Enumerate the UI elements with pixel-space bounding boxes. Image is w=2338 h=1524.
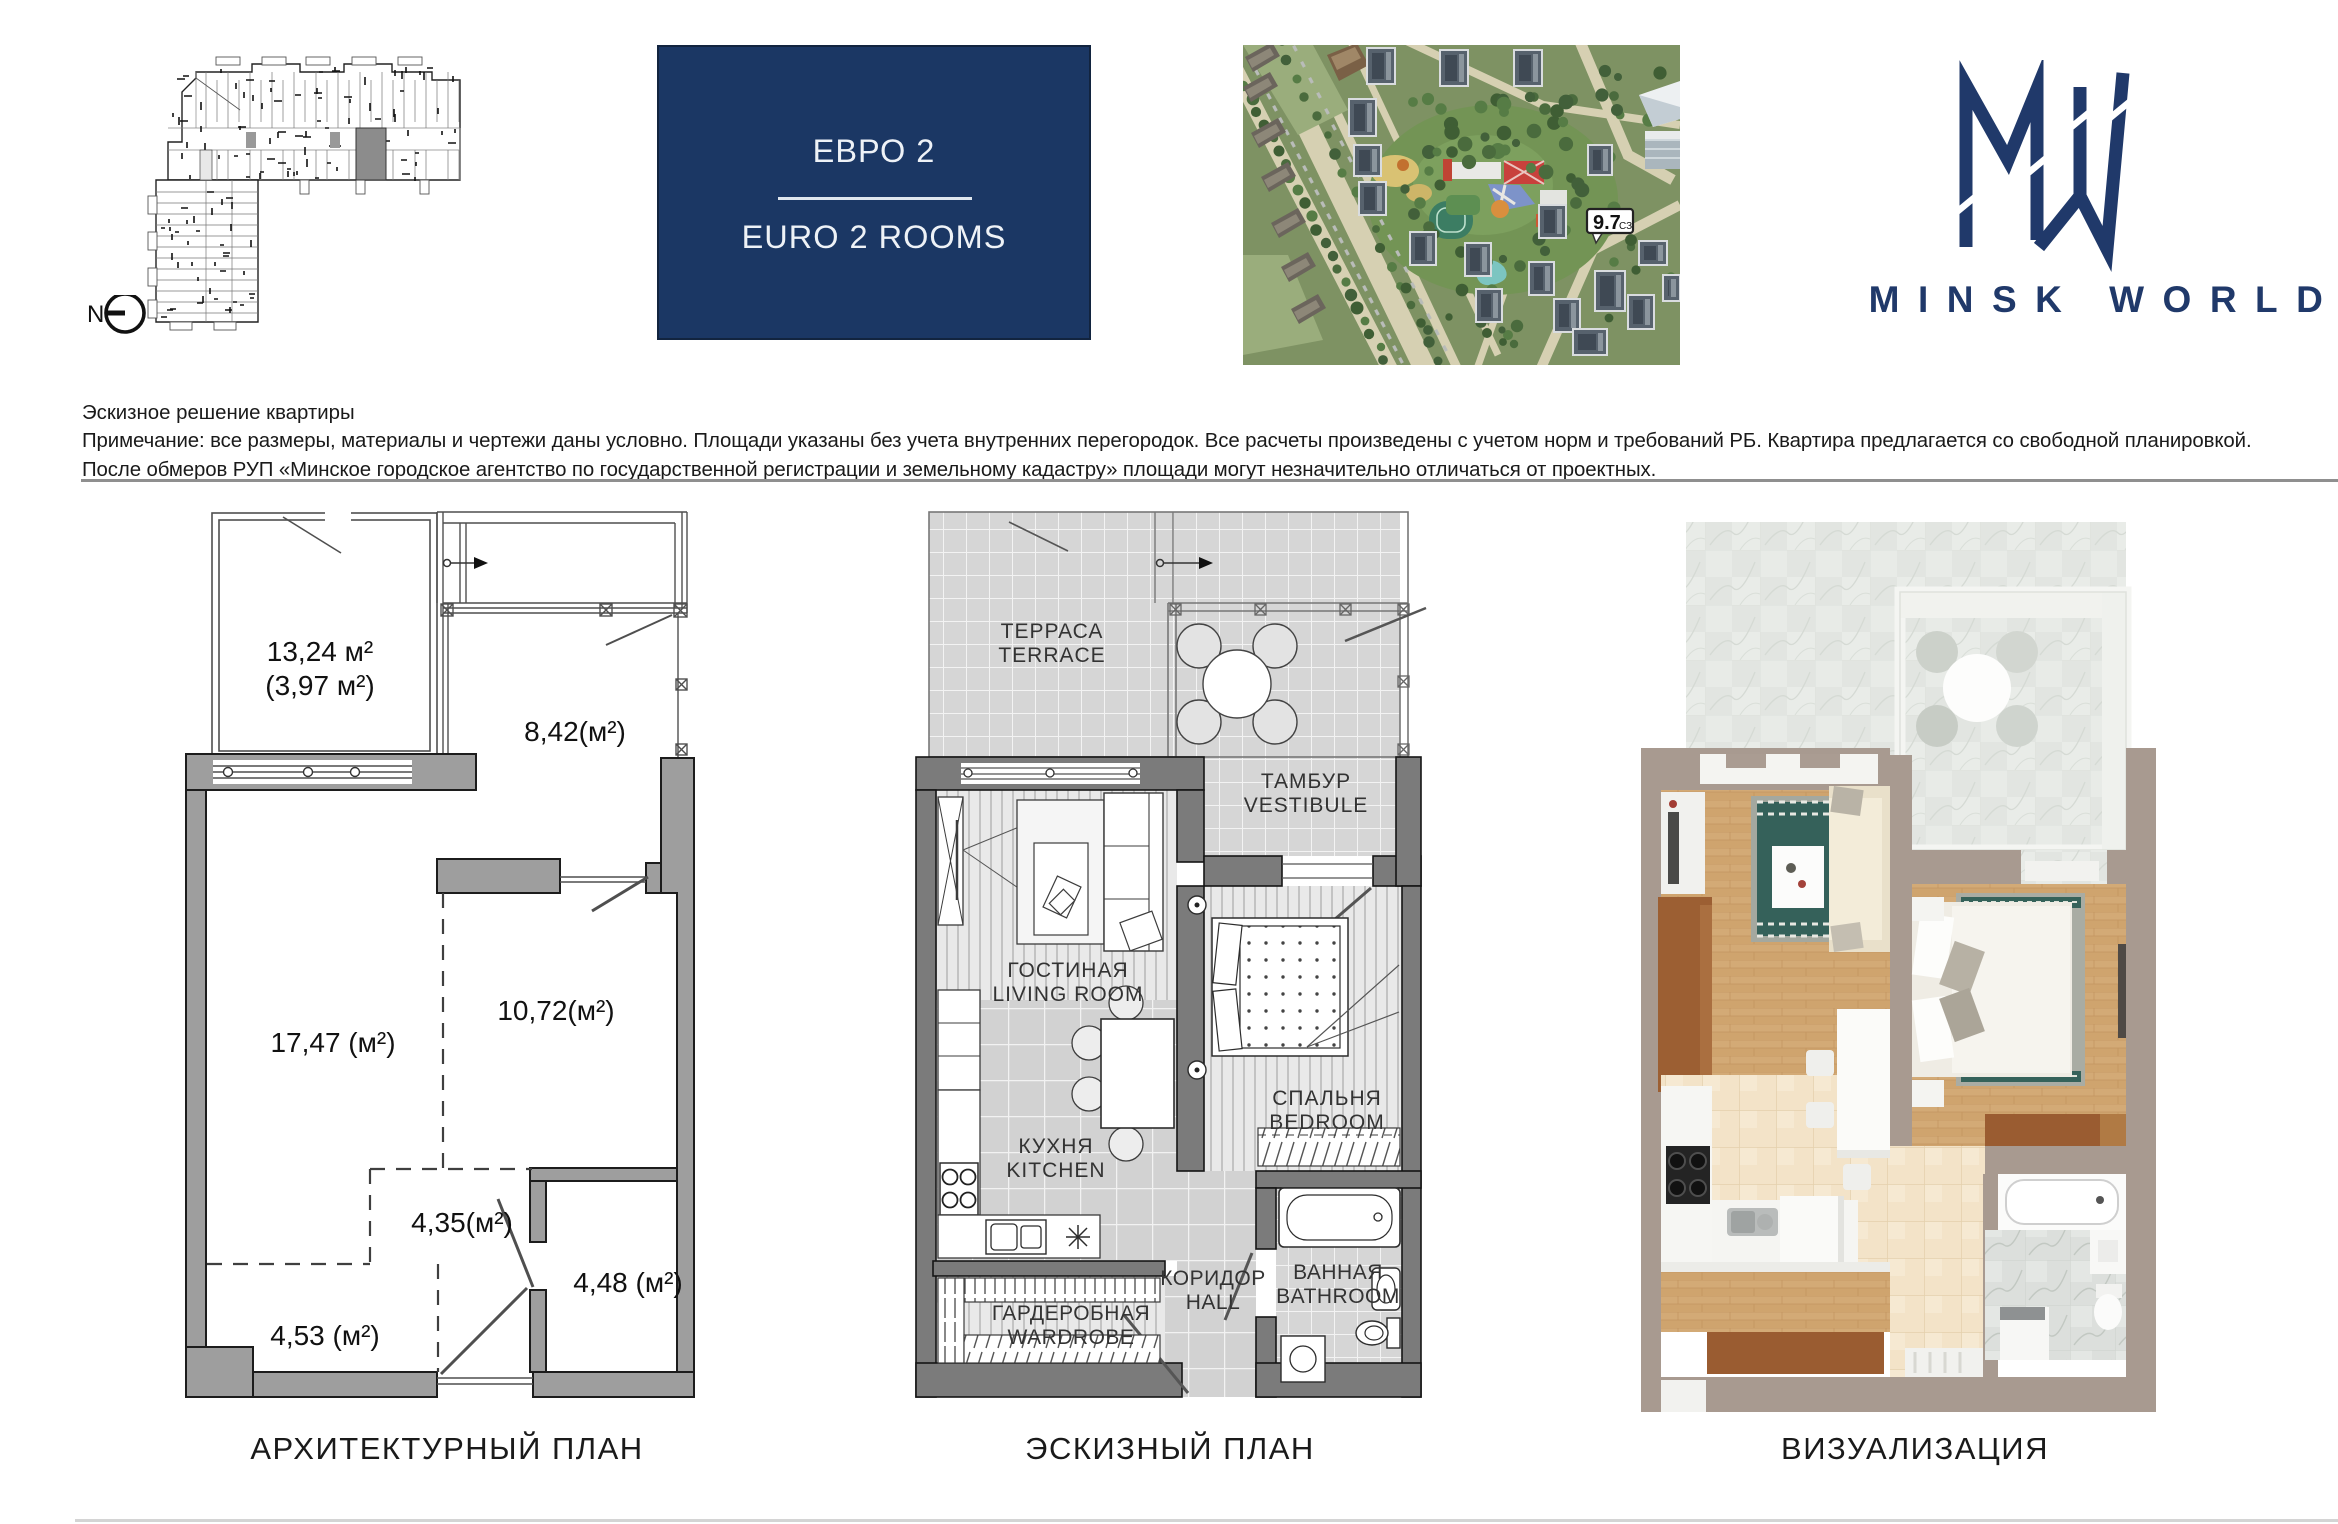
svg-text:ТЕРРАСА: ТЕРРАСА	[1001, 620, 1104, 643]
svg-text:КУХНЯ: КУХНЯ	[1018, 1135, 1093, 1158]
svg-text:WARDROBE: WARDROBE	[1008, 1326, 1135, 1349]
svg-text:ТАМБУР: ТАМБУР	[1261, 770, 1351, 793]
svg-text:HALL: HALL	[1186, 1291, 1241, 1314]
svg-text:КОРИДОР: КОРИДОР	[1160, 1267, 1266, 1290]
svg-text:ВАННАЯ: ВАННАЯ	[1293, 1261, 1383, 1284]
svg-text:13,24 м²: 13,24 м²	[267, 636, 373, 667]
svg-text:17,47 (м²): 17,47 (м²)	[270, 1027, 395, 1058]
svg-text:N: N	[87, 301, 104, 328]
svg-text:BEDROOM: BEDROOM	[1269, 1111, 1385, 1134]
svg-text:BATHROOM: BATHROOM	[1276, 1285, 1400, 1308]
svg-text:4,48 (м²): 4,48 (м²)	[573, 1267, 683, 1298]
svg-text:TERRACE: TERRACE	[998, 644, 1105, 667]
svg-text:10,72(м²): 10,72(м²)	[497, 995, 614, 1026]
svg-text:MINSK WORLD: MINSK WORLD	[1869, 279, 2330, 320]
svg-text:LIVING ROOM: LIVING ROOM	[992, 983, 1143, 1006]
svg-text:9.7: 9.7	[1593, 212, 1621, 234]
svg-text:4,53 (м²): 4,53 (м²)	[270, 1320, 380, 1351]
svg-text:4,35(м²): 4,35(м²)	[411, 1207, 513, 1238]
svg-text:VESTIBULE: VESTIBULE	[1244, 794, 1369, 817]
svg-text:СЗ: СЗ	[1619, 221, 1632, 232]
svg-text:СПАЛЬНЯ: СПАЛЬНЯ	[1272, 1087, 1382, 1110]
svg-text:KITCHEN: KITCHEN	[1006, 1159, 1105, 1182]
svg-text:ГОСТИНАЯ: ГОСТИНАЯ	[1007, 959, 1128, 982]
svg-text:ГАРДЕРОБНАЯ: ГАРДЕРОБНАЯ	[992, 1302, 1150, 1325]
svg-text:8,42(м²): 8,42(м²)	[524, 716, 626, 747]
svg-text:(3,97 м²): (3,97 м²)	[265, 670, 375, 701]
